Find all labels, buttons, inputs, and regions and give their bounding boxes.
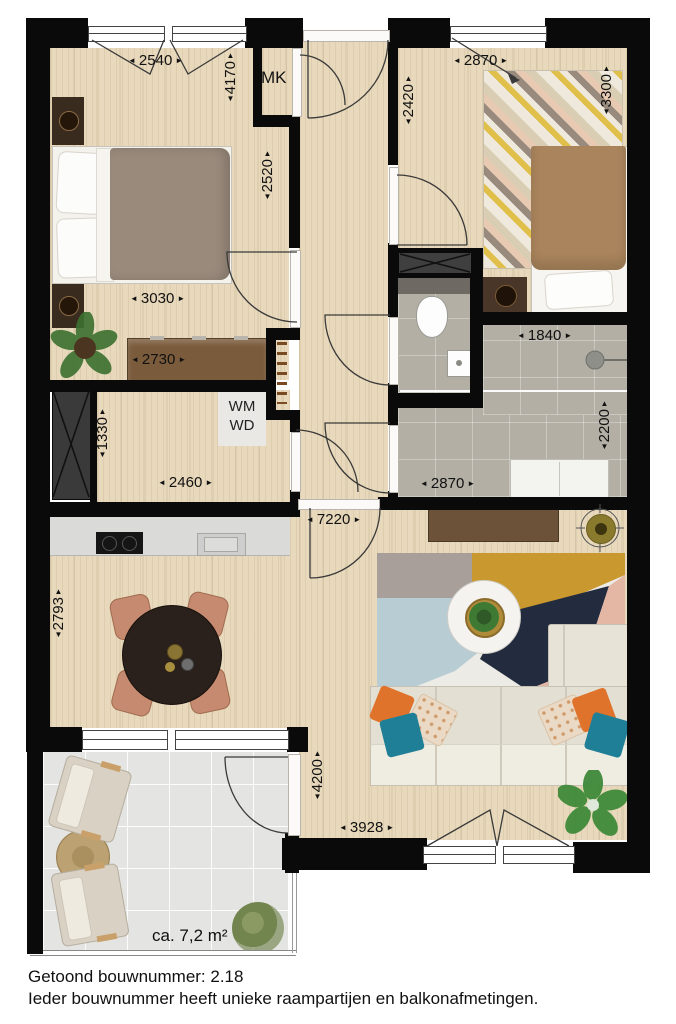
- dim-bedroom2-depth: ▲3300▼: [598, 65, 615, 116]
- living-doorway[interactable]: [298, 499, 380, 510]
- shower-screen: [400, 390, 627, 392]
- living-french-doors: [423, 846, 575, 864]
- sideboard-handle: [234, 336, 248, 340]
- balcony-chair: [50, 863, 130, 948]
- hallway-floor: [299, 38, 388, 510]
- washer-dryer-label: WM WD: [218, 392, 266, 446]
- wd-label: WD: [218, 417, 266, 436]
- plant-icon: [50, 312, 120, 382]
- mk-door[interactable]: [292, 48, 302, 117]
- dim-living-depth: ▲4200▼: [309, 750, 326, 801]
- wall: [26, 502, 300, 517]
- balcony-railing: [30, 950, 296, 956]
- kitchen-counter: [50, 517, 290, 556]
- wall: [627, 18, 650, 873]
- bedroom2-doorway[interactable]: [389, 167, 399, 245]
- chair-cushion: [55, 763, 95, 829]
- chair-cushion: [58, 876, 92, 941]
- wall: [289, 127, 300, 248]
- wall: [285, 833, 299, 873]
- window-mullion: [495, 846, 504, 864]
- bed-double-duvet: [110, 148, 230, 280]
- wardrobe: [52, 390, 92, 500]
- dim-laundry-depth: ▲1330▼: [94, 408, 111, 459]
- nightstand-1: [52, 97, 84, 145]
- plant-icon: [469, 602, 499, 632]
- floor-plan: WM WD: [0, 0, 676, 1024]
- wall: [470, 275, 483, 395]
- balcony-right-edge: [292, 873, 297, 953]
- shaft-box: [399, 253, 471, 273]
- wall: [388, 393, 483, 408]
- bedroom1-window: [88, 26, 247, 42]
- table-decor: [181, 658, 194, 671]
- wall: [266, 340, 276, 412]
- wall: [470, 312, 627, 325]
- dim-living-bottom-width: ◄3928►: [339, 819, 394, 836]
- sofa-seam: [563, 625, 565, 691]
- entrance-doorway[interactable]: [303, 30, 390, 42]
- bedroom1-doorway[interactable]: [290, 250, 301, 328]
- vanity-divider: [559, 462, 560, 496]
- wall: [290, 420, 300, 432]
- burner-icon: [122, 536, 137, 551]
- window-mullion: [167, 730, 176, 750]
- plant-icon: [558, 770, 628, 840]
- table-decor: [165, 662, 175, 672]
- dim-bathroom-upper: ◄1840►: [517, 327, 572, 344]
- burner-icon: [102, 536, 117, 551]
- wall: [266, 328, 300, 340]
- wall: [27, 730, 43, 954]
- sideboard-handle: [192, 336, 206, 340]
- bathroom-vanity: [510, 459, 609, 499]
- toilet-cistern-wall: [398, 278, 470, 294]
- wall: [287, 727, 308, 752]
- bedroom2-window: [450, 26, 547, 42]
- dim-bathroom-width: ◄2870►: [420, 475, 475, 492]
- dim-sideboard: ◄2730►: [131, 351, 186, 368]
- dim-bedroom1-segment: ▲2520▼: [259, 150, 276, 201]
- window-mullion: [164, 26, 173, 42]
- dim-hall-segment: ▲2420▼: [400, 75, 417, 126]
- wall: [245, 18, 303, 48]
- radiator: [277, 342, 287, 404]
- wall: [266, 410, 300, 420]
- wall: [50, 380, 266, 392]
- sofa-seam: [500, 687, 502, 745]
- wall: [282, 838, 427, 870]
- wall: [26, 18, 50, 730]
- kitchen-balcony-window: [82, 730, 289, 750]
- toilet-doorway[interactable]: [389, 317, 399, 385]
- dim-bedroom1-width: ◄3030►: [130, 290, 185, 307]
- wall: [573, 842, 650, 873]
- wm-label: WM: [218, 398, 266, 417]
- dim-bedroom1-depth: ▲4170▼: [222, 52, 239, 103]
- bed-single-pillow: [544, 270, 614, 311]
- caption-line1: Getoond bouwnummer: 2.18: [28, 966, 538, 988]
- wall: [26, 727, 82, 752]
- plant-icon: [232, 902, 284, 954]
- sofa-chaise: [548, 624, 630, 692]
- faucet-icon: [456, 360, 462, 366]
- cooktop: [96, 532, 143, 554]
- laundry-doorway[interactable]: [291, 432, 301, 492]
- nightstand-3: [483, 277, 527, 313]
- table-decor: [167, 644, 183, 660]
- dim-bathroom-depth: ▲2200▼: [596, 400, 613, 451]
- dining-table: [122, 605, 222, 705]
- mk-label: MK: [261, 68, 287, 88]
- floor-lamp: [586, 514, 616, 544]
- sofa-seam: [435, 745, 437, 785]
- balcony-area-label: ca. 7,2 m²: [152, 926, 228, 946]
- dim-living-width: ◄7220►: [306, 511, 361, 528]
- dim-kitchen-depth: ▲2793▼: [50, 588, 67, 639]
- lamp-icon: [59, 111, 79, 131]
- wall: [378, 497, 627, 510]
- dim-bedroom1-window: ◄2540►: [128, 52, 183, 69]
- bathroom-doorway[interactable]: [389, 425, 399, 493]
- sideboard-handle: [150, 336, 164, 340]
- wall: [388, 491, 398, 510]
- sofa-seam: [500, 745, 502, 785]
- balcony-door-leaf[interactable]: [288, 754, 301, 836]
- dim-laundry-width: ◄2460►: [158, 474, 213, 491]
- bed-single-duvet: [531, 146, 626, 270]
- sink-basin: [204, 537, 238, 552]
- dim-bedroom2-width: ◄2870►: [453, 52, 508, 69]
- lamp-center: [595, 523, 607, 535]
- kitchen-sink: [197, 533, 246, 556]
- toilet-bowl: [416, 296, 448, 338]
- coffee-table: [447, 580, 521, 654]
- lamp-icon: [495, 285, 517, 307]
- caption: Getoond bouwnummer: 2.18 Ieder bouwnumme…: [28, 966, 538, 1011]
- caption-line2: Ieder bouwnummer heeft unieke raampartij…: [28, 988, 538, 1010]
